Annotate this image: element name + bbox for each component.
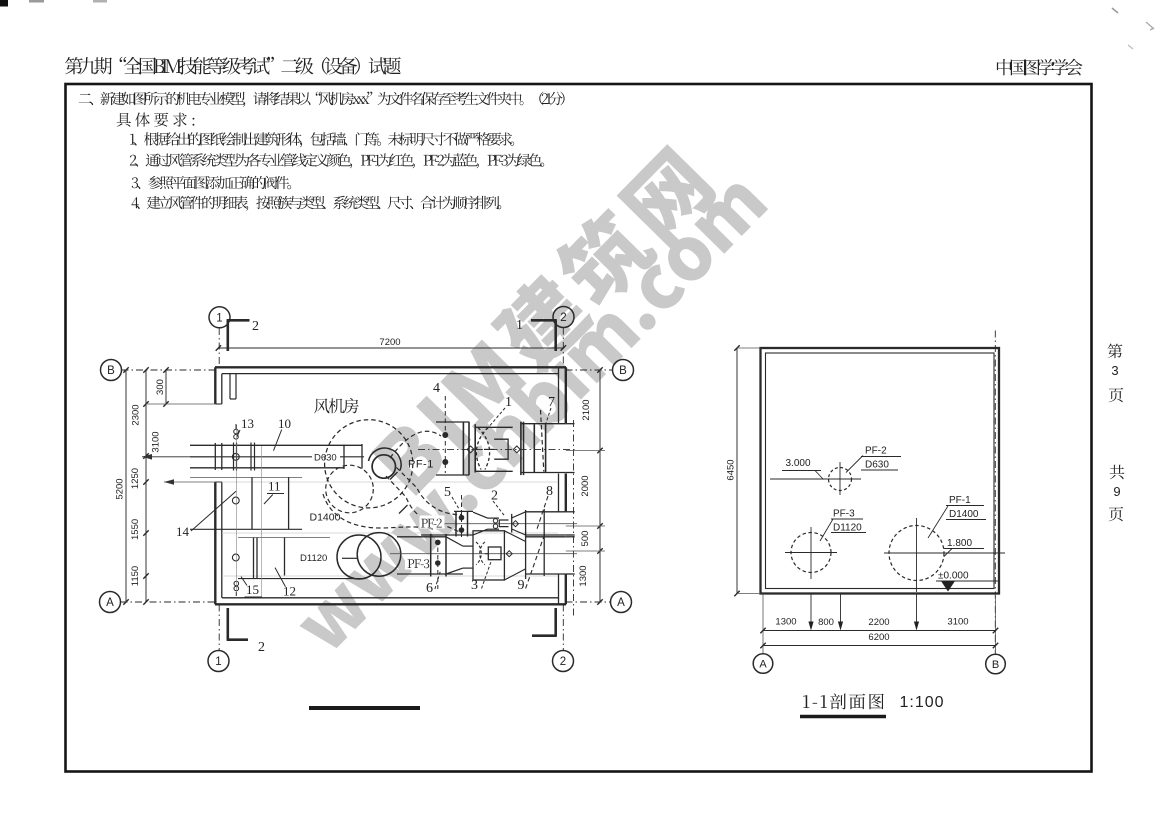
svg-text:800: 800 [818, 617, 834, 628]
svg-text:D1120: D1120 [300, 553, 327, 564]
svg-text:PF-1: PF-1 [408, 459, 434, 471]
svg-text:PF-3: PF-3 [833, 509, 855, 520]
svg-text:2: 2 [252, 319, 259, 334]
svg-text:A: A [617, 597, 625, 609]
svg-text:5: 5 [444, 485, 451, 500]
svg-text:9: 9 [1113, 484, 1120, 499]
svg-text:4: 4 [433, 381, 440, 396]
svg-text:2: 2 [560, 312, 566, 324]
svg-text:1.800: 1.800 [947, 538, 972, 549]
svg-text:2000: 2000 [580, 475, 591, 496]
svg-text:B: B [992, 659, 999, 671]
svg-text:13: 13 [241, 416, 254, 431]
svg-text:B: B [619, 365, 627, 377]
svg-text:6450: 6450 [726, 459, 737, 480]
svg-text:8: 8 [546, 484, 553, 499]
svg-text:2: 2 [560, 656, 566, 668]
svg-text:D1400: D1400 [310, 512, 341, 524]
svg-text:2: 2 [258, 640, 265, 655]
svg-text:2100: 2100 [581, 399, 592, 420]
svg-text:1300: 1300 [578, 565, 589, 586]
svg-text:D1120: D1120 [833, 523, 862, 534]
svg-text:3100: 3100 [151, 431, 162, 452]
svg-text:1: 1 [516, 318, 523, 333]
svg-text:1550: 1550 [130, 519, 141, 540]
svg-text:2: 2 [491, 489, 498, 504]
svg-text:1150: 1150 [130, 566, 141, 586]
svg-text:2300: 2300 [130, 404, 141, 425]
svg-text:9: 9 [518, 578, 525, 593]
svg-text:1: 1 [216, 312, 222, 324]
svg-text:300: 300 [155, 379, 166, 395]
svg-text:2200: 2200 [868, 617, 889, 628]
svg-text:1250: 1250 [130, 468, 141, 489]
svg-text:6200: 6200 [868, 632, 889, 643]
svg-text:3.000: 3.000 [786, 458, 811, 469]
svg-text:1300: 1300 [775, 617, 796, 628]
svg-text:A: A [759, 658, 767, 670]
svg-text:B: B [107, 365, 115, 377]
svg-text:1: 1 [215, 656, 221, 668]
svg-text:500: 500 [580, 531, 591, 547]
svg-text:3: 3 [471, 578, 478, 593]
svg-text:1:100: 1:100 [900, 694, 945, 711]
svg-text:5200: 5200 [115, 478, 126, 499]
svg-text:6: 6 [426, 581, 433, 596]
svg-text:15: 15 [246, 582, 259, 597]
svg-text:PF-2: PF-2 [865, 446, 887, 457]
svg-text:7200: 7200 [379, 337, 400, 348]
svg-text:7: 7 [548, 395, 555, 410]
svg-text:14: 14 [176, 524, 190, 539]
svg-text:3100: 3100 [947, 617, 968, 628]
svg-text:D1400: D1400 [949, 509, 979, 520]
svg-text:PF-1: PF-1 [949, 495, 971, 506]
svg-text:±0.000: ±0.000 [938, 571, 969, 582]
svg-text:A: A [106, 597, 114, 609]
svg-text:11: 11 [268, 479, 281, 494]
svg-text:1: 1 [505, 395, 512, 410]
svg-text:10: 10 [278, 416, 291, 431]
svg-text:3: 3 [1111, 363, 1118, 378]
svg-text:D630: D630 [865, 460, 889, 471]
